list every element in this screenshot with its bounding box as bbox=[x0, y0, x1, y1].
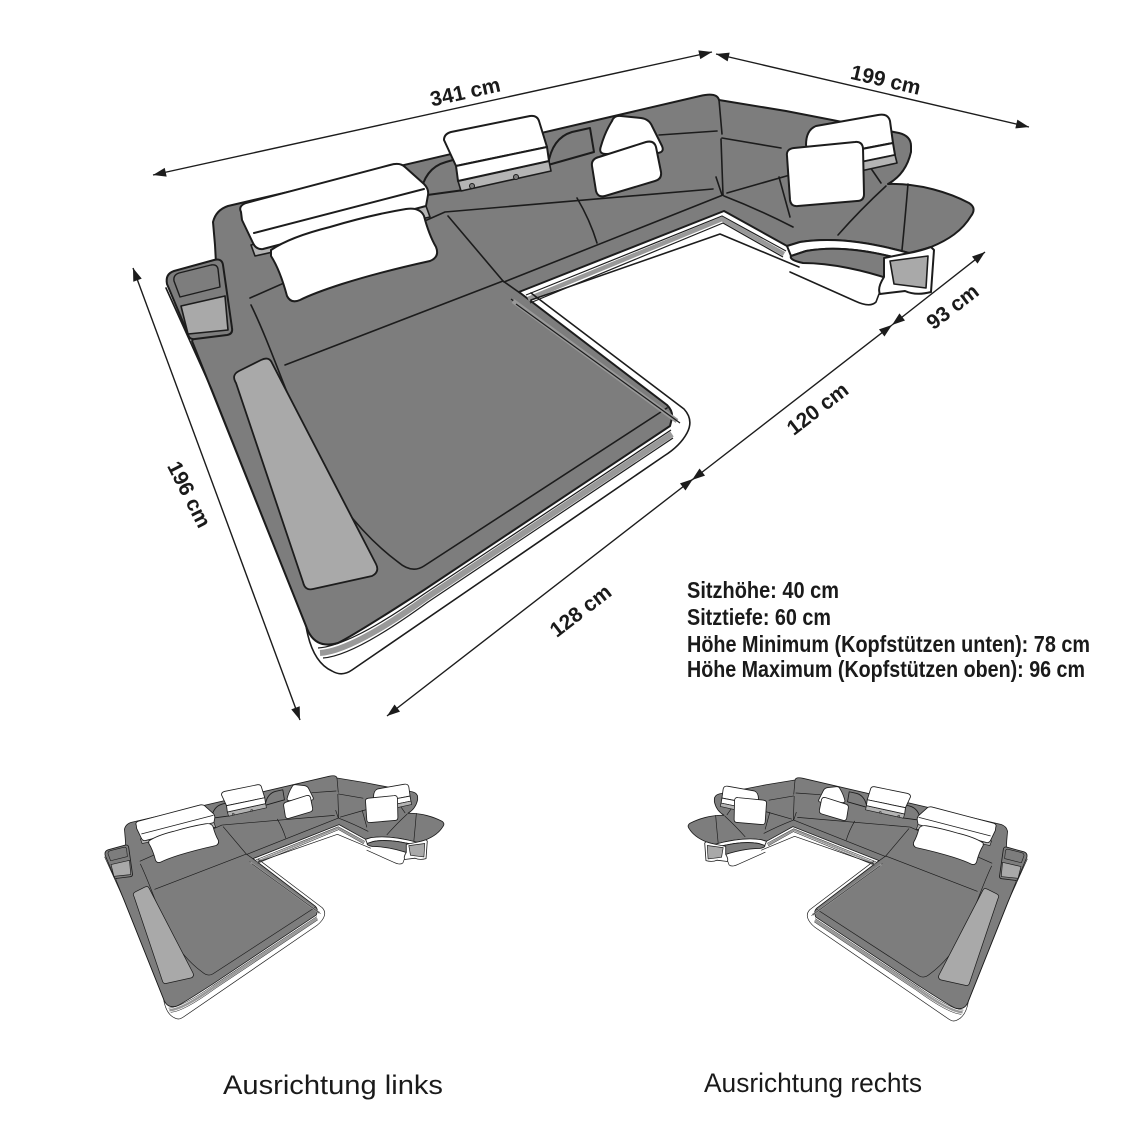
svg-text:120 cm: 120 cm bbox=[783, 378, 853, 440]
svg-text:Sitztiefe: 60 cm: Sitztiefe: 60 cm bbox=[687, 604, 831, 630]
svg-text:Ausrichtung links: Ausrichtung links bbox=[223, 1070, 443, 1100]
svg-text:Sitzhöhe: 40 cm: Sitzhöhe: 40 cm bbox=[687, 577, 839, 603]
svg-text:Ausrichtung rechts: Ausrichtung rechts bbox=[704, 1068, 922, 1098]
svg-text:Höhe Minimum (Kopfstützen unte: Höhe Minimum (Kopfstützen unten): 78 cm bbox=[687, 631, 1090, 657]
svg-text:128 cm: 128 cm bbox=[546, 580, 616, 642]
svg-text:Höhe Maximum (Kopfstützen oben: Höhe Maximum (Kopfstützen oben): 96 cm bbox=[687, 656, 1085, 682]
